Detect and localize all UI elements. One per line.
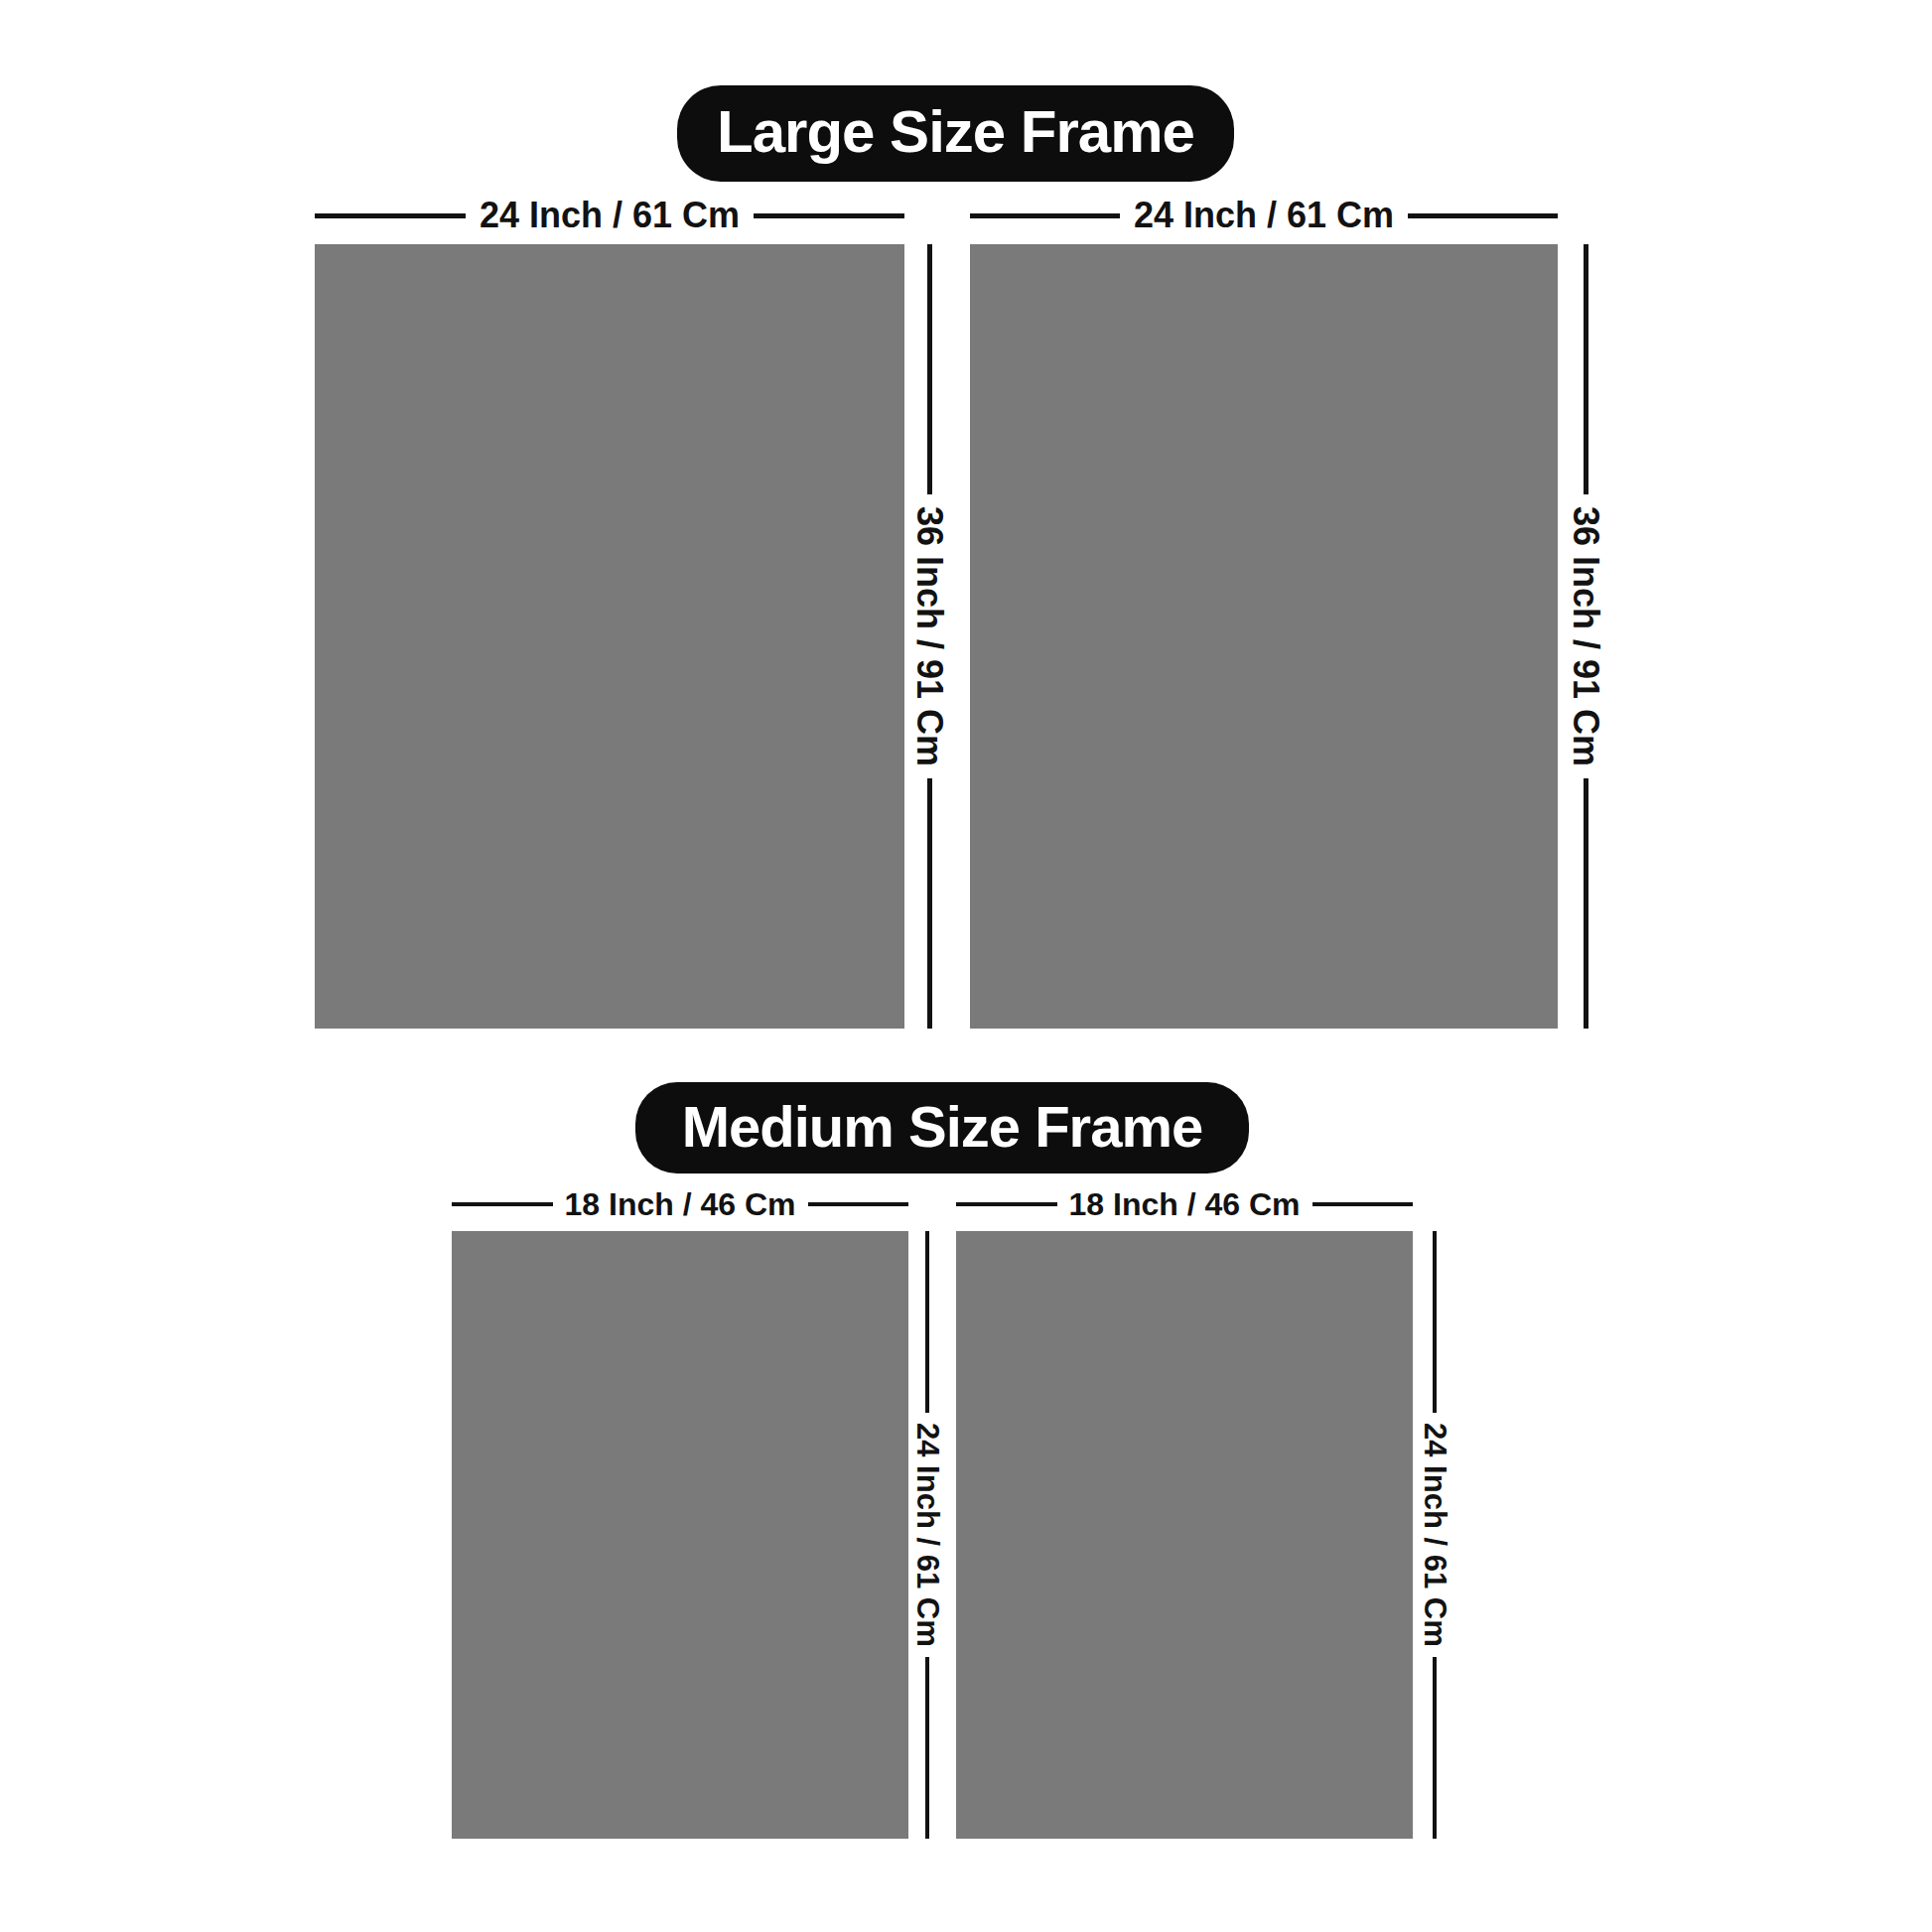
dimension-line-bottom [1584,778,1588,1029]
large-right-height-dimension: 36 Inch / 91 Cm [1564,244,1607,1029]
medium-size-title: Medium Size Frame [682,1093,1202,1160]
dimension-line-right [1312,1202,1414,1206]
dimension-line-left [956,1202,1057,1206]
medium-right-height-dimension: 24 Inch / 61 Cm [1415,1231,1454,1839]
dimension-line-bottom [925,1657,929,1839]
medium-right-frame-preview [956,1231,1413,1839]
dimension-line-right [808,1202,909,1206]
large-right-width-dimension: 24 Inch / 61 Cm [970,198,1558,233]
dimension-line-right [1408,213,1558,218]
height-label: 24 Inch / 61 Cm [912,1423,943,1647]
width-label: 24 Inch / 61 Cm [1134,198,1394,233]
medium-size-title-pill: Medium Size Frame [635,1082,1249,1173]
dimension-line-bottom [1433,1657,1437,1839]
dimension-line-left [452,1202,553,1206]
height-label: 36 Inch / 91 Cm [1568,506,1603,766]
width-label: 18 Inch / 46 Cm [1069,1188,1301,1220]
width-label: 18 Inch / 46 Cm [565,1188,796,1220]
height-label: 24 Inch / 61 Cm [1420,1423,1450,1647]
dimension-line-right [754,213,904,218]
large-right-frame-preview [970,244,1558,1029]
width-label: 24 Inch / 61 Cm [480,198,740,233]
medium-right-width-dimension: 18 Inch / 46 Cm [956,1187,1413,1221]
dimension-line-left [315,213,466,218]
medium-left-width-dimension: 18 Inch / 46 Cm [452,1187,908,1221]
dimension-line-top [927,244,932,494]
large-left-height-dimension: 36 Inch / 91 Cm [907,244,951,1029]
medium-left-frame-preview [452,1231,908,1839]
height-label: 36 Inch / 91 Cm [911,506,947,766]
dimension-line-left [970,213,1120,218]
large-left-frame-preview [315,244,904,1029]
large-size-title-pill: Large Size Frame [677,85,1234,182]
dimension-line-top [1433,1231,1437,1413]
dimension-line-top [925,1231,929,1413]
large-size-title: Large Size Frame [717,97,1194,166]
large-left-width-dimension: 24 Inch / 61 Cm [315,198,904,233]
frame-size-guide: Large Size Frame 24 Inch / 61 Cm 24 Inch… [0,0,1932,1932]
dimension-line-bottom [927,778,932,1029]
dimension-line-top [1584,244,1588,494]
medium-left-height-dimension: 24 Inch / 61 Cm [907,1231,947,1839]
